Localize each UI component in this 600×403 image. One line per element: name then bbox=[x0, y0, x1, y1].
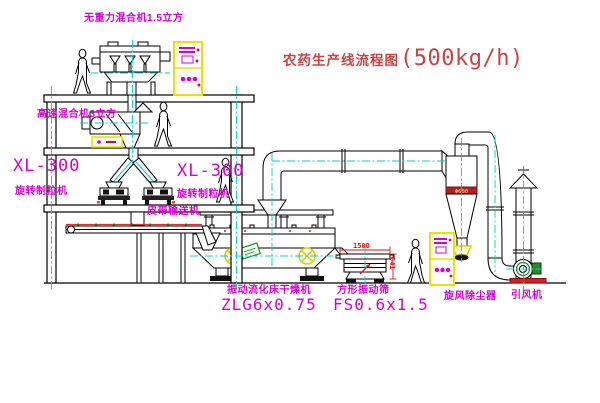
label-granulator-left-name: 旋转制粒机 bbox=[15, 186, 68, 197]
title-capacity: (500kg/h) bbox=[400, 46, 524, 71]
worker-floor2 bbox=[155, 102, 172, 146]
granulator-left bbox=[97, 182, 130, 205]
label-dryer-model: ZLG6x0.75 bbox=[221, 295, 317, 314]
gravity-free-mixer bbox=[92, 42, 170, 95]
label-granulator-left-model: XL-300 bbox=[13, 156, 80, 176]
dryer-exhaust-duct bbox=[263, 149, 449, 202]
title-text: 农药生产线流程图 bbox=[283, 49, 399, 69]
label-fan: 引风机 bbox=[511, 290, 543, 301]
granulator-right bbox=[142, 182, 175, 205]
worker-ground bbox=[408, 239, 425, 283]
worker-roof bbox=[74, 49, 91, 93]
label-granulator-right-name: 旋转制粒机 bbox=[177, 189, 230, 200]
label-belt-conveyor: 皮带输送机 bbox=[147, 206, 200, 217]
cad-flow-diagram: Φ600 bbox=[0, 0, 600, 403]
control-cabinet-top bbox=[174, 42, 202, 95]
high-speed-mixer bbox=[82, 95, 152, 148]
label-gravity-mixer: 无重力混合机1.5立方 bbox=[84, 13, 183, 24]
label-high-speed-mixer: 高速混合机3立方 bbox=[37, 109, 117, 120]
label-sieve-model: FS0.6x1.5 bbox=[333, 295, 429, 314]
control-cabinet-bottom bbox=[430, 233, 454, 285]
induced-draft-fan bbox=[510, 260, 546, 284]
label-granulator-right-model: XL-300 bbox=[177, 161, 244, 181]
dim-sieve-height: 541 bbox=[388, 257, 396, 270]
label-cyclone: 旋风除尘器 bbox=[444, 291, 497, 302]
dim-sieve-width: 1500 bbox=[353, 242, 370, 250]
drawing-title: 农药生产线流程图 (500kg/h) bbox=[283, 46, 524, 71]
